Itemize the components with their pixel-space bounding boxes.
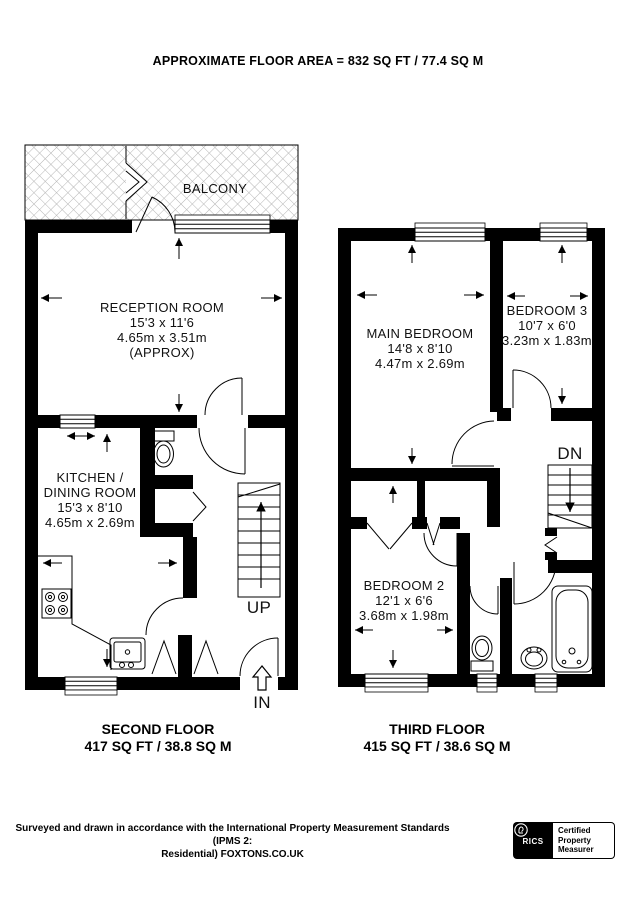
kitchen-door xyxy=(146,598,183,635)
rics-cert-line-3: Measurer xyxy=(558,845,614,855)
second-floor-walls xyxy=(25,220,298,690)
bedroom2-window xyxy=(365,674,428,692)
entry-label: IN xyxy=(253,693,271,712)
third-floor-caption: THIRD FLOOR 415 SQ FT / 38.6 SQ M xyxy=(337,721,537,755)
bedroom3-imperial: 10'7 x 6'0 xyxy=(518,318,576,333)
airing-cupboard-door xyxy=(545,537,557,553)
rics-certification: Certified Property Measurer xyxy=(553,822,615,859)
bedroom3-metric: 3.23m x 1.83m xyxy=(502,333,592,348)
bathroom-window xyxy=(535,674,557,692)
reception-window xyxy=(175,220,270,233)
stairs-up-label: UP xyxy=(247,598,271,617)
disclaimer-line-2: Residential) FOXTONS.CO.UK xyxy=(10,848,455,861)
main-bedroom-label: MAIN BEDROOM 14'8 x 8'10 4.47m x 2.69m xyxy=(367,326,474,371)
second-floor-name: SECOND FLOOR xyxy=(22,721,294,738)
bedroom2-door xyxy=(424,533,457,566)
rics-cert-line-1: Certified xyxy=(558,826,614,836)
hob-icon xyxy=(42,589,71,618)
kitchen-room-label: KITCHEN / DINING ROOM 15'3 x 8'10 4.65m … xyxy=(44,470,137,530)
third-floor-area: 415 SQ FT / 38.6 SQ M xyxy=(337,738,537,755)
bedroom3-name: BEDROOM 3 xyxy=(507,303,588,318)
main-bedroom-door xyxy=(452,421,494,466)
kitchen-counter xyxy=(38,556,111,670)
entry-arrow-icon xyxy=(253,666,271,690)
reception-approx: (APPROX) xyxy=(129,345,194,360)
reception-imperial: 15'3 x 11'6 xyxy=(130,315,194,330)
kitchen-metric: 4.65m x 2.69m xyxy=(45,515,135,530)
main-bedroom-window xyxy=(415,223,485,241)
balcony-label: BALCONY xyxy=(183,181,247,196)
main-bedroom-name: MAIN BEDROOM xyxy=(367,326,474,341)
closet-door xyxy=(193,492,206,521)
second-floor-caption: SECOND FLOOR 417 SQ FT / 38.8 SQ M xyxy=(22,721,294,755)
wc2-toilet-icon xyxy=(471,636,493,671)
rics-logo: RICS xyxy=(513,822,553,859)
stairs-down xyxy=(548,465,592,528)
floorplan-drawing: BALCONY xyxy=(0,0,636,714)
kitchen-name-1: KITCHEN / xyxy=(57,470,124,485)
disclaimer: Surveyed and drawn in accordance with th… xyxy=(10,822,455,861)
rics-badge: RICS Certified Property Measurer xyxy=(513,822,615,859)
sink-icon xyxy=(110,638,145,669)
wc2-door xyxy=(470,586,498,614)
wc-door xyxy=(199,428,245,474)
closet-doors xyxy=(367,523,440,549)
basin-icon xyxy=(521,647,547,669)
stairs-down-label: DN xyxy=(557,444,582,463)
bedroom3-label: BEDROOM 3 10'7 x 6'0 3.23m x 1.83m xyxy=(502,303,592,348)
bedroom2-imperial: 12'1 x 6'6 xyxy=(375,593,433,608)
main-bedroom-imperial: 14'8 x 8'10 xyxy=(387,341,452,356)
reception-metric: 4.65m x 3.51m xyxy=(117,330,207,345)
kitchen-window xyxy=(65,677,117,695)
rics-lion-icon xyxy=(513,822,529,838)
bedroom3-window xyxy=(540,223,587,241)
rics-cert-line-2: Property xyxy=(558,836,614,846)
third-floor-plan: DN xyxy=(338,223,605,692)
second-floor-area: 417 SQ FT / 38.8 SQ M xyxy=(22,738,294,755)
wc2-window xyxy=(477,674,497,692)
serving-hatch xyxy=(60,415,95,428)
wc-toilet-icon xyxy=(153,431,174,467)
disclaimer-line-1: Surveyed and drawn in accordance with th… xyxy=(10,822,455,848)
reception-door xyxy=(205,378,242,415)
kitchen-name-2: DINING ROOM xyxy=(44,485,137,500)
bathtub-icon xyxy=(552,586,592,672)
second-floor-plan: BALCONY xyxy=(25,145,298,712)
kitchen-imperial: 15'3 x 8'10 xyxy=(57,500,122,515)
second-floor-windows xyxy=(60,215,270,695)
reception-room-label: RECEPTION ROOM 15'3 x 11'6 4.65m x 3.51m… xyxy=(100,300,224,360)
third-floor-name: THIRD FLOOR xyxy=(337,721,537,738)
main-bedroom-metric: 4.47m x 2.69m xyxy=(375,356,465,371)
bedroom2-label: BEDROOM 2 12'1 x 6'6 3.68m x 1.98m xyxy=(359,578,449,623)
bedroom2-name: BEDROOM 2 xyxy=(364,578,445,593)
bedroom3-door xyxy=(513,370,551,408)
reception-name: RECEPTION ROOM xyxy=(100,300,224,315)
stairs-up xyxy=(238,483,280,597)
floorplan-page: APPROXIMATE FLOOR AREA = 832 SQ FT / 77.… xyxy=(0,0,636,900)
bedroom2-metric: 3.68m x 1.98m xyxy=(359,608,449,623)
